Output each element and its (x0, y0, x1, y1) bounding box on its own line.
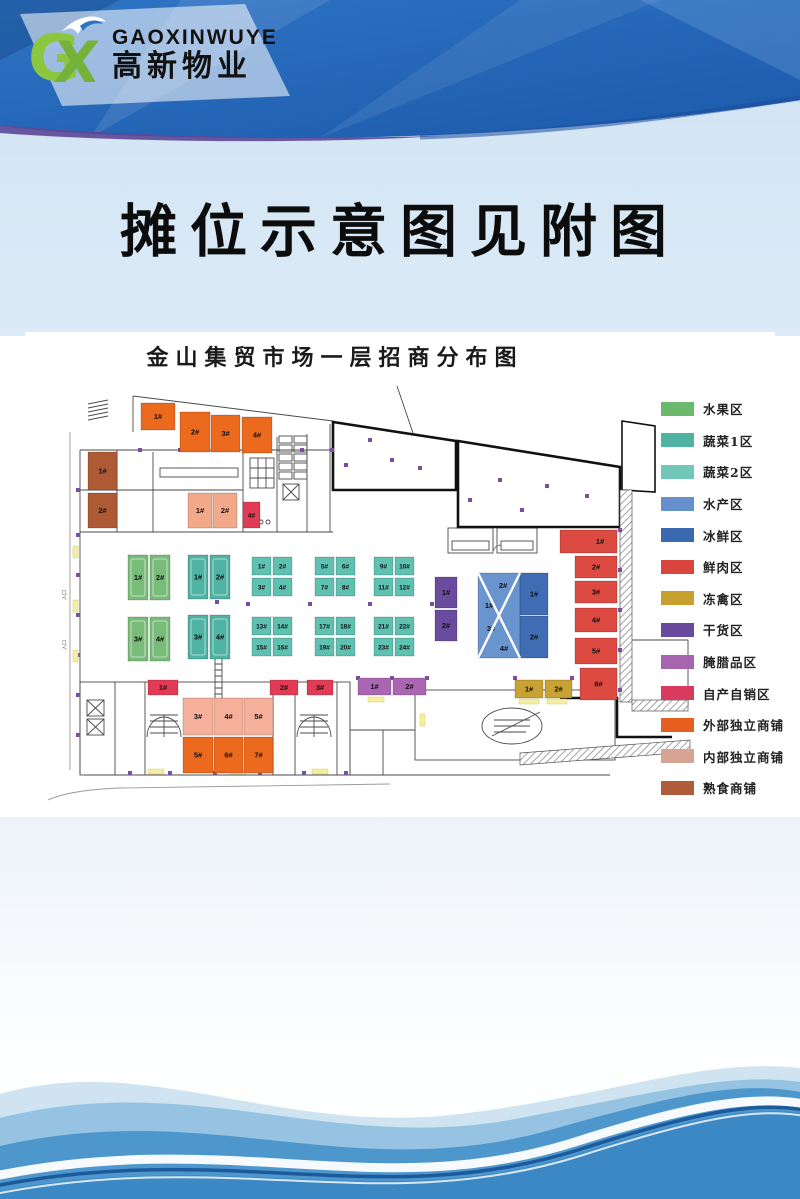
stall-label: 1# (596, 537, 605, 546)
stall-label: 2# (98, 506, 107, 515)
logo-mark-x: X (52, 30, 102, 96)
stall-label: 2# (280, 683, 289, 692)
stall-label: 2# (530, 633, 539, 642)
stall-label: 7# (321, 585, 329, 592)
legend: 水果区蔬菜1区蔬菜2区水产区冰鲜区鲜肉区冻禽区干货区腌腊品区自产自销区外部独立商… (661, 393, 773, 804)
stall-label: 2# (279, 564, 287, 571)
stall-label: 3# (194, 712, 203, 721)
legend-swatch (661, 560, 694, 574)
legend-swatch (661, 402, 694, 416)
legend-label: 干货区 (703, 620, 744, 639)
stall-label: 15# (256, 645, 267, 652)
stall-label: 20# (340, 645, 351, 652)
stall-label: 16# (277, 645, 288, 652)
stall-label: 2# (216, 573, 225, 582)
legend-label: 腌腊品区 (703, 652, 757, 671)
stall-label: 1# (530, 590, 539, 599)
legend-label: 蔬菜2区 (703, 462, 753, 481)
brand-latin: GAOXINWUYE (112, 26, 278, 49)
legend-item: 蔬菜2区 (661, 456, 773, 488)
stall-label: 4# (216, 633, 225, 642)
legend-item: 腌腊品区 (661, 646, 773, 678)
legend-label: 外部独立商铺 (703, 715, 784, 734)
stall-label: 2# (191, 428, 200, 437)
stall-label: 2# (592, 563, 601, 572)
stall-label: 24# (399, 645, 410, 652)
legend-swatch (661, 433, 694, 447)
stall-label: 9# (380, 564, 388, 571)
legend-swatch (661, 718, 694, 732)
stall-label: 22# (399, 624, 410, 631)
legend-label: 自产自销区 (703, 684, 771, 703)
stall-label: 2# (221, 506, 230, 515)
legend-swatch (661, 465, 694, 479)
stall-label: 4# (592, 616, 601, 625)
legend-item: 自产自销区 (661, 677, 773, 709)
stall-label: 19# (319, 645, 330, 652)
brand-cn: 高新物业 (112, 49, 252, 84)
stall-label: 5# (321, 564, 329, 571)
stall-label: 1# (258, 564, 266, 571)
legend-swatch (661, 623, 694, 637)
stall-label: 11# (378, 585, 389, 592)
legend-label: 水产区 (703, 494, 744, 513)
legend-item: 干货区 (661, 614, 773, 646)
stall-label: 3# (316, 683, 325, 692)
stall-label: 6# (594, 680, 603, 689)
legend-label: 内部独立商铺 (703, 747, 784, 766)
stall-label: 3# (221, 429, 230, 438)
stall-label: 8# (342, 585, 350, 592)
stall-label: 23# (378, 645, 389, 652)
legend-label: 冻禽区 (703, 589, 744, 608)
legend-swatch (661, 749, 694, 763)
stall-label: 1# (134, 573, 143, 582)
poster-page: 摊位示意图见附图 G X GAOXINWUYE 高新物业 金山集贸市场一层招商分… (0, 0, 800, 1199)
stall-label: 1# (194, 573, 203, 582)
legend-swatch (661, 497, 694, 511)
legend-item: 水产区 (661, 488, 773, 520)
legend-label: 冰鲜区 (703, 526, 744, 545)
legend-item: 水果区 (661, 393, 773, 425)
legend-item: 熟食商铺 (661, 772, 773, 804)
notice-title: 摊位示意图见附图 (0, 186, 800, 268)
floorplan-panel: 金山集贸市场一层招商分布图 (25, 332, 775, 817)
header-banner: G X GAOXINWUYE 高新物业 (0, 0, 800, 150)
stall-label: 1# (370, 682, 379, 691)
stall-label: 2# (405, 682, 414, 691)
stall-label: 2# (499, 581, 508, 590)
stall-label: 3# (134, 635, 143, 644)
stall-label: 13# (256, 624, 267, 631)
legend-item: 外部独立商铺 (661, 709, 773, 741)
stall-label: 18# (340, 624, 351, 631)
legend-label: 蔬菜1区 (703, 431, 753, 450)
legend-swatch (661, 591, 694, 605)
stall-label: 4# (248, 513, 256, 520)
stall-label: 4# (224, 712, 233, 721)
stall-label: 4# (500, 644, 509, 653)
stall-label: 2# (156, 573, 165, 582)
legend-swatch (661, 655, 694, 669)
leader-line (397, 386, 413, 433)
stall-label: 1# (159, 683, 168, 692)
legend-item: 冻禽区 (661, 583, 773, 615)
stall-label: 12# (399, 585, 410, 592)
stall-label: 10# (399, 564, 410, 571)
stall-label: 4# (253, 431, 262, 440)
entrance-label: 入口 (62, 640, 68, 650)
stall-label: 2# (554, 685, 563, 694)
stall-label: 21# (378, 624, 389, 631)
legend-swatch (661, 781, 694, 795)
stall-label: 7# (254, 751, 263, 760)
legend-label: 鲜肉区 (703, 557, 744, 576)
legend-label: 熟食商铺 (703, 778, 757, 797)
stall-label: 6# (342, 564, 350, 571)
stall-label: 6# (224, 751, 233, 760)
stall-label: 1# (525, 685, 534, 694)
stall-label: 17# (319, 624, 330, 631)
stall-label: 3# (258, 585, 266, 592)
legend-item: 鲜肉区 (661, 551, 773, 583)
legend-swatch (661, 686, 694, 700)
stall-label: 2# (442, 621, 451, 630)
stall-label: 5# (254, 712, 263, 721)
stall-label: 5# (194, 751, 203, 760)
legend-item: 内部独立商铺 (661, 741, 773, 773)
stall-label: 3# (592, 588, 601, 597)
entrance-label: 入口 (62, 590, 68, 600)
stall-label: 14# (277, 624, 288, 631)
stall-label: 1# (98, 467, 107, 476)
legend-swatch (661, 528, 694, 542)
stall-label: 4# (156, 635, 165, 644)
stall-label: 3# (194, 633, 203, 642)
stall-label: 1# (154, 412, 163, 421)
footer-waves (0, 1029, 800, 1199)
legend-item: 蔬菜1区 (661, 425, 773, 457)
stall-label: 5# (592, 647, 601, 656)
stall-label: 1# (196, 506, 205, 515)
legend-label: 水果区 (703, 399, 744, 418)
stall (560, 530, 617, 553)
stall-label: 4# (279, 585, 287, 592)
legend-item: 冰鲜区 (661, 519, 773, 551)
stall-label: 1# (442, 588, 451, 597)
